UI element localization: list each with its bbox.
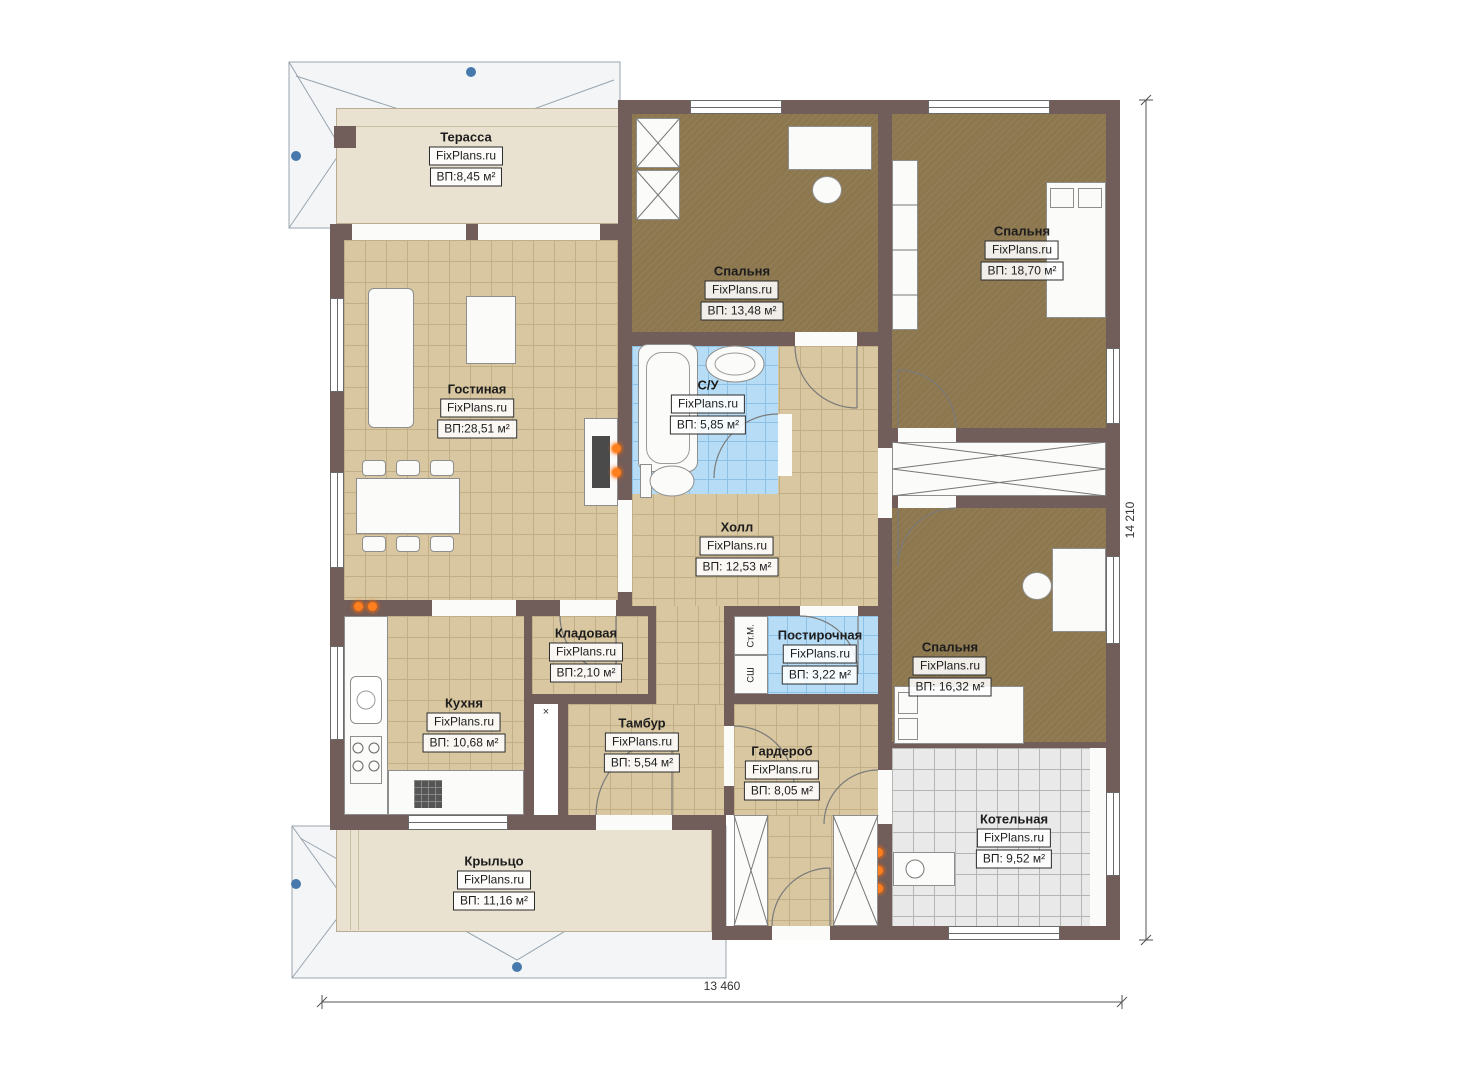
pillow <box>898 718 918 740</box>
fire-glow-dot <box>612 444 621 453</box>
roof-marker-dot <box>512 962 522 972</box>
chair <box>362 536 386 552</box>
washer-label: Ст.М. <box>746 624 757 647</box>
room-area: ВП:28,51 м² <box>437 420 517 439</box>
closet <box>636 170 680 220</box>
window <box>928 100 1050 114</box>
room-name: Гардероб <box>751 744 812 759</box>
room-name: Постирочная <box>778 628 862 643</box>
stove <box>350 736 382 784</box>
window <box>330 646 344 740</box>
window <box>1106 792 1120 876</box>
room-label-terrace: Терасса FixPlans.ru ВП:8,45 м² <box>429 130 503 187</box>
boiler-unit <box>893 852 955 886</box>
room-area: ВП: 16,32 м² <box>909 678 992 697</box>
window <box>1106 556 1120 644</box>
room-name: Кладовая <box>555 626 617 641</box>
room-name: Крыльцо <box>464 854 523 869</box>
window <box>408 815 508 830</box>
back-door-opening <box>772 926 830 940</box>
room-brand: FixPlans.ru <box>913 657 987 676</box>
radiator-dot <box>354 602 363 611</box>
room-name: Спальня <box>714 264 770 279</box>
room-brand: FixPlans.ru <box>977 829 1051 848</box>
sofa <box>368 288 414 428</box>
room-label-bedroom2: Спальня FixPlans.ru ВП: 18,70 м² <box>981 224 1064 281</box>
desk <box>788 126 872 170</box>
room-name: Кухня <box>445 696 483 711</box>
closet <box>734 815 768 926</box>
window <box>330 472 344 568</box>
room-name: Холл <box>721 520 754 535</box>
door-opening <box>878 770 892 824</box>
closet <box>892 442 1106 496</box>
room-brand: FixPlans.ru <box>745 761 819 780</box>
room-name: Спальня <box>994 224 1050 239</box>
hood-vent <box>414 780 442 808</box>
office-chair <box>812 176 842 204</box>
room-name: Терасса <box>440 130 492 145</box>
fireplace-hearth <box>592 436 610 488</box>
door-opening <box>898 428 956 442</box>
office-chair <box>1022 572 1052 600</box>
room-name: Тамбур <box>618 716 665 731</box>
room-area: ВП: 5,85 м² <box>670 416 746 435</box>
door-opening <box>898 496 956 508</box>
chair <box>396 460 420 476</box>
roof-marker-dot <box>291 151 301 161</box>
desk <box>1052 548 1106 632</box>
room-area: ВП: 3,22 м² <box>782 666 858 685</box>
kitchen-sink <box>350 676 382 724</box>
terrace-door-opening <box>478 224 600 240</box>
room-name: Спальня <box>922 640 978 655</box>
window <box>948 926 1060 940</box>
room-brand: FixPlans.ru <box>427 713 501 732</box>
room-name: Гостиная <box>448 382 507 397</box>
door-opening <box>778 414 792 476</box>
room-brand: FixPlans.ru <box>700 537 774 556</box>
room-area: ВП: 8,05 м² <box>744 782 820 801</box>
window <box>690 100 782 114</box>
fire-glow-dot <box>612 468 621 477</box>
closet <box>636 118 680 168</box>
room-label-bedroom1: Спальня FixPlans.ru ВП: 13,48 м² <box>701 264 784 321</box>
door-opening <box>724 726 734 786</box>
room-area: ВП: 13,48 м² <box>701 302 784 321</box>
wall <box>648 616 656 694</box>
floor-plan: 14 210 13 460 Ст.М. СШ × Терасса FixPlan… <box>0 0 1474 1080</box>
roof-marker-dot <box>466 67 476 77</box>
porch-step-line <box>350 830 351 930</box>
room-area: ВП: 12,53 м² <box>696 558 779 577</box>
coffee-table <box>466 296 516 364</box>
chair <box>430 536 454 552</box>
room-brand: FixPlans.ru <box>429 147 503 166</box>
room-area: ВП:8,45 м² <box>430 168 503 187</box>
pillow <box>1050 188 1074 208</box>
dining-table <box>356 478 460 534</box>
room-brand: FixPlans.ru <box>705 281 779 300</box>
corridor-floor <box>656 600 724 704</box>
room-brand: FixPlans.ru <box>457 871 531 890</box>
room-label-bathroom: С/У FixPlans.ru ВП: 5,85 м² <box>670 378 746 435</box>
door-opening <box>560 600 616 616</box>
room-name: С/У <box>697 378 718 393</box>
room-area: ВП: 10,68 м² <box>423 734 506 753</box>
door-opening <box>800 606 858 616</box>
room-brand: FixPlans.ru <box>783 645 857 664</box>
door-opening <box>795 332 857 346</box>
room-label-storage: Кладовая FixPlans.ru ВП:2,10 м² <box>549 626 623 683</box>
roof-marker-dot <box>291 879 301 889</box>
boiler-side-strip <box>1090 748 1106 926</box>
front-door-opening <box>596 815 672 830</box>
terrace-door-opening <box>352 224 466 240</box>
room-label-kitchen: Кухня FixPlans.ru ВП: 10,68 м² <box>423 696 506 753</box>
room-label-living: Гостиная FixPlans.ru ВП:28,51 м² <box>437 382 517 439</box>
window <box>330 298 344 392</box>
terrace-post <box>334 126 356 148</box>
chair <box>396 536 420 552</box>
closet <box>833 815 878 926</box>
porch-step-line <box>358 830 359 930</box>
dimension-width-label: 13 460 <box>704 979 741 993</box>
room-label-porch: Крыльцо FixPlans.ru ВП: 11,16 м² <box>453 854 535 911</box>
pillow <box>1078 188 1102 208</box>
dimension-height-label: 14 210 <box>1123 502 1137 539</box>
back-corridor-floor <box>768 815 833 926</box>
wall <box>524 694 658 704</box>
room-area: ВП:2,10 м² <box>550 664 623 683</box>
room-brand: FixPlans.ru <box>985 241 1059 260</box>
room-label-boiler: Котельная FixPlans.ru ВП: 9,52 м² <box>976 812 1052 869</box>
dryer-label: СШ <box>746 667 757 683</box>
room-area: ВП: 9,52 м² <box>976 850 1052 869</box>
living-hall-opening <box>618 500 632 592</box>
room-name: Котельная <box>980 812 1048 827</box>
radiator-dot <box>368 602 377 611</box>
vent-symbol: × <box>543 706 549 718</box>
kitchen-opening <box>432 600 516 616</box>
room-area: ВП: 5,54 м² <box>604 754 680 773</box>
room-label-bedroom3: Спальня FixPlans.ru ВП: 16,32 м² <box>909 640 992 697</box>
kitchen-counter <box>388 770 524 815</box>
door-opening <box>878 448 892 518</box>
room-area: ВП: 18,70 м² <box>981 262 1064 281</box>
wall <box>712 815 726 926</box>
window <box>1106 348 1120 424</box>
room-area: ВП: 11,16 м² <box>453 892 535 911</box>
terrace-step-line <box>338 126 620 127</box>
wall <box>724 694 880 704</box>
toilet-tank <box>640 464 652 498</box>
wall <box>558 704 568 815</box>
room-label-laundry: Постирочная FixPlans.ru ВП: 3,22 м² <box>778 628 862 685</box>
chair <box>362 460 386 476</box>
room-label-hall: Холл FixPlans.ru ВП: 12,53 м² <box>696 520 779 577</box>
chair <box>430 460 454 476</box>
room-brand: FixPlans.ru <box>440 399 514 418</box>
shelving <box>892 160 918 330</box>
room-brand: FixPlans.ru <box>549 643 623 662</box>
room-label-wardrobe: Гардероб FixPlans.ru ВП: 8,05 м² <box>744 744 820 801</box>
room-label-vestibule: Тамбур FixPlans.ru ВП: 5,54 м² <box>604 716 680 773</box>
room-brand: FixPlans.ru <box>605 733 679 752</box>
room-brand: FixPlans.ru <box>671 395 745 414</box>
